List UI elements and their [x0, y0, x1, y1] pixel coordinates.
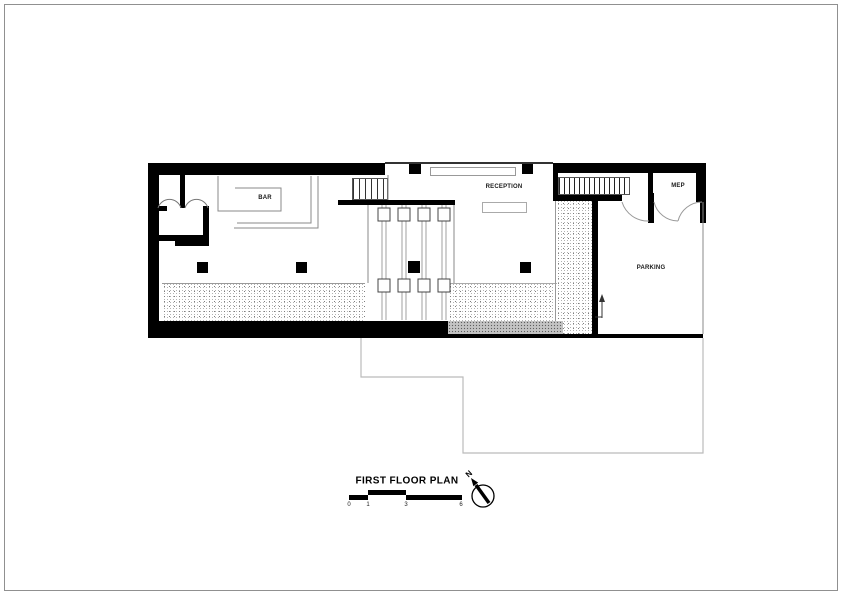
column-4: [520, 262, 531, 273]
terrace-hatch-left: [162, 283, 365, 322]
wall-wc-partition: [180, 175, 185, 208]
room-label-parking: PARKING: [637, 265, 666, 271]
wall-wc-stub: [155, 206, 167, 211]
room-label-mep: MEP: [671, 183, 685, 189]
wall-bottom-left: [148, 321, 448, 338]
plan-title: FIRST FLOOR PLAN: [355, 476, 458, 487]
wall-stair-bottom: [553, 195, 622, 201]
scale-bar-segment-1: [349, 495, 368, 500]
entry-canopy: [430, 167, 516, 176]
wall-parking-left: [592, 201, 598, 338]
terrace-hatch-center: [448, 283, 557, 322]
room-label-reception: RECEPTION: [486, 184, 523, 190]
reception-desk: [482, 202, 527, 213]
column-facade-2: [522, 163, 533, 174]
walkway-hatch-right: [555, 201, 593, 335]
driveway-paving-strip: [448, 321, 563, 335]
wall-mezzanine-edge: [338, 200, 455, 205]
scale-label-3: 3: [404, 502, 407, 508]
wall-wc-step: [175, 241, 209, 246]
sheet-border-frame: [4, 4, 838, 591]
wall-top-left: [148, 163, 385, 175]
scale-bar-segment-3: [406, 495, 462, 500]
wall-top-right: [553, 163, 706, 173]
door-jamb-center: [648, 193, 654, 223]
scale-label-0: 0: [347, 502, 350, 508]
wall-bottom-right: [448, 334, 703, 338]
drawing-sheet: BAR RECEPTION MEP PARKING FIRST FLOOR PL…: [0, 0, 842, 595]
wall-left: [148, 163, 159, 338]
column-1: [197, 262, 208, 273]
door-jamb-right: [700, 193, 706, 223]
room-label-bar: BAR: [258, 195, 272, 201]
stair-right: [558, 177, 630, 195]
scale-bar-segment-2: [368, 490, 406, 495]
column-facade-1: [409, 163, 421, 174]
column-3: [408, 261, 420, 273]
stair-left: [352, 178, 388, 200]
glass-facade-line: [385, 162, 553, 164]
scale-label-1: 1: [366, 502, 369, 508]
scale-label-6: 6: [459, 502, 462, 508]
column-2: [296, 262, 307, 273]
